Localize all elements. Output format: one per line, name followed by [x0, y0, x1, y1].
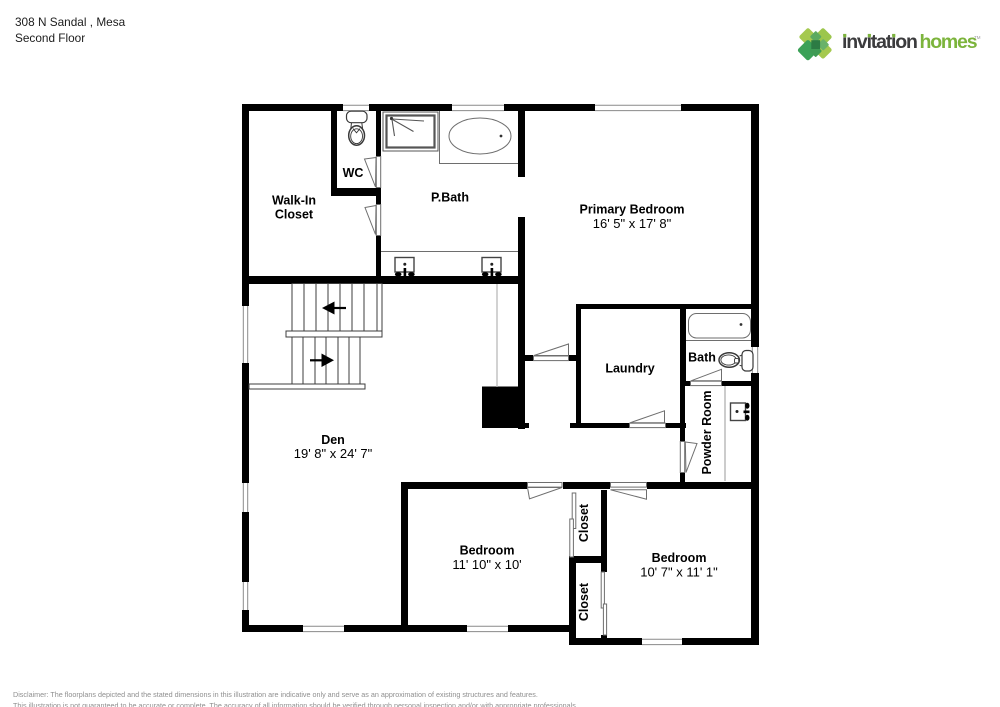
svg-text:Closet: Closet	[577, 503, 591, 542]
svg-text:Closet: Closet	[275, 208, 314, 222]
svg-text:Bedroom: Bedroom	[652, 551, 707, 565]
svg-text:Walk-In: Walk-In	[272, 194, 316, 208]
svg-text:Closet: Closet	[577, 582, 591, 621]
svg-text:P.Bath: P.Bath	[431, 191, 469, 205]
svg-text:11' 10" x 10': 11' 10" x 10'	[452, 557, 521, 572]
svg-text:Laundry: Laundry	[605, 362, 654, 376]
svg-text:10' 7" x 11' 1": 10' 7" x 11' 1"	[640, 565, 718, 580]
svg-text:Bedroom: Bedroom	[460, 544, 515, 558]
svg-text:19' 8" x 24' 7": 19' 8" x 24' 7"	[294, 446, 373, 461]
svg-text:Primary Bedroom: Primary Bedroom	[580, 203, 685, 217]
svg-text:Den: Den	[321, 433, 345, 447]
svg-text:Bath: Bath	[688, 351, 716, 365]
svg-text:WC: WC	[343, 166, 364, 180]
svg-text:Powder Room: Powder Room	[700, 390, 714, 474]
svg-text:16' 5" x 17' 8": 16' 5" x 17' 8"	[593, 216, 672, 231]
